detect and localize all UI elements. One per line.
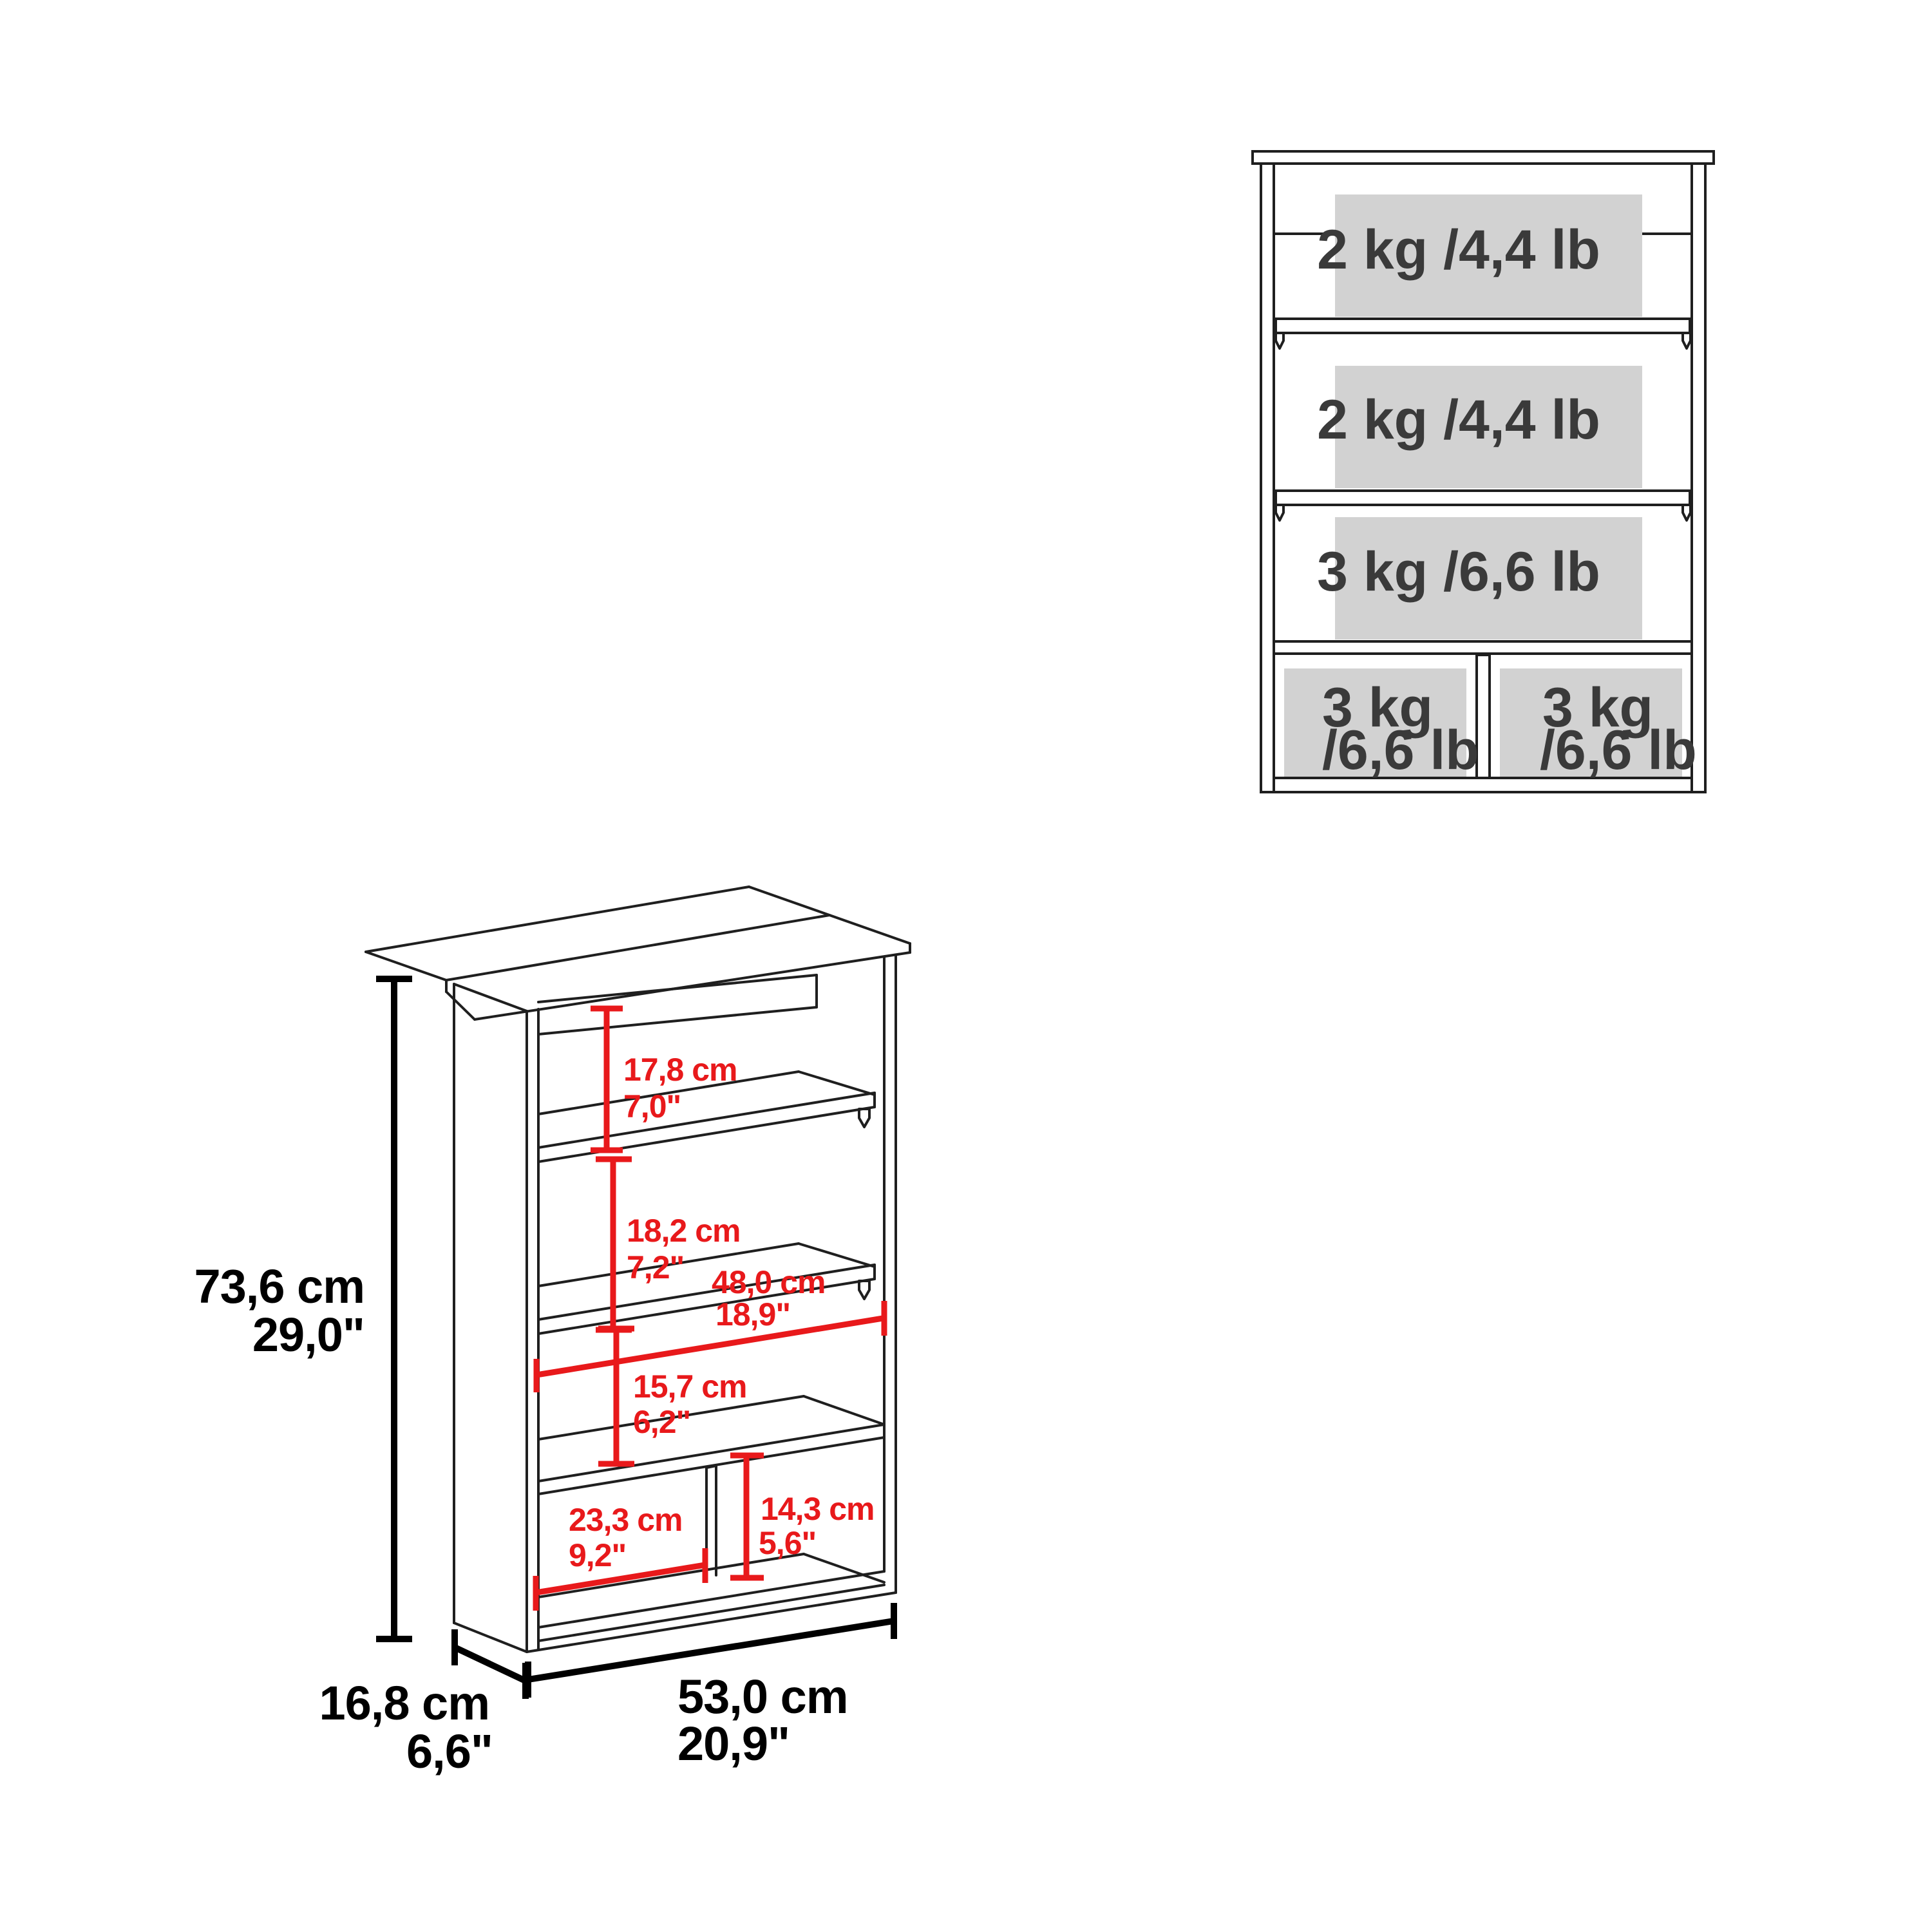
capacity-label-cubby-right-line2: /6,6 lb [1540,719,1697,781]
dim-cubby-height-cm: 14,3 cm [761,1491,874,1527]
dim-middle-gap-cm: 18,2 cm [627,1213,740,1249]
dim-lower-gap-in: 6,2" [633,1404,690,1440]
dim-depth-cm: 16,8 cm [319,1676,489,1730]
dim-top-gap-in: 7,0" [623,1088,681,1124]
cabinet-spec-diagram: 17,8 cm 7,0" 18,2 cm 7,2" 48,0 cm 18,9" … [0,0,1932,1932]
dim-interior-width-cm: 48,0 cm [712,1264,825,1300]
shelf-support-peg-icons-left-view [859,1109,869,1299]
spec-sheet-page: 17,8 cm 7,0" 18,2 cm 7,2" 48,0 cm 18,9" … [0,0,1932,1932]
capacity-label-shelf-3: 3 kg /6,6 lb [1317,541,1600,603]
capacity-label-shelf-2: 2 kg /4,4 lb [1317,389,1600,451]
dim-interior-width-in: 18,9" [715,1296,790,1332]
dim-lower-gap-cm: 15,7 cm [633,1368,746,1405]
dim-width-cm: 53,0 cm [677,1670,848,1723]
capacity-label-cubby-left-line2: /6,6 lb [1322,719,1479,781]
dim-top-gap-cm: 17,8 cm [623,1052,737,1088]
dim-width-in: 20,9" [677,1717,790,1770]
dim-height-in: 29,0" [252,1308,365,1361]
dim-depth-in: 6,6" [406,1725,493,1778]
capacity-label-shelf-1: 2 kg /4,4 lb [1317,219,1600,281]
dim-cubby-width-in: 9,2" [569,1537,626,1573]
dim-middle-gap-in: 7,2" [627,1249,684,1285]
dim-cubby-height-in: 5,6" [759,1525,816,1561]
dim-cubby-width-cm: 23,3 cm [569,1502,682,1538]
dim-height-cm: 73,6 cm [194,1260,365,1313]
